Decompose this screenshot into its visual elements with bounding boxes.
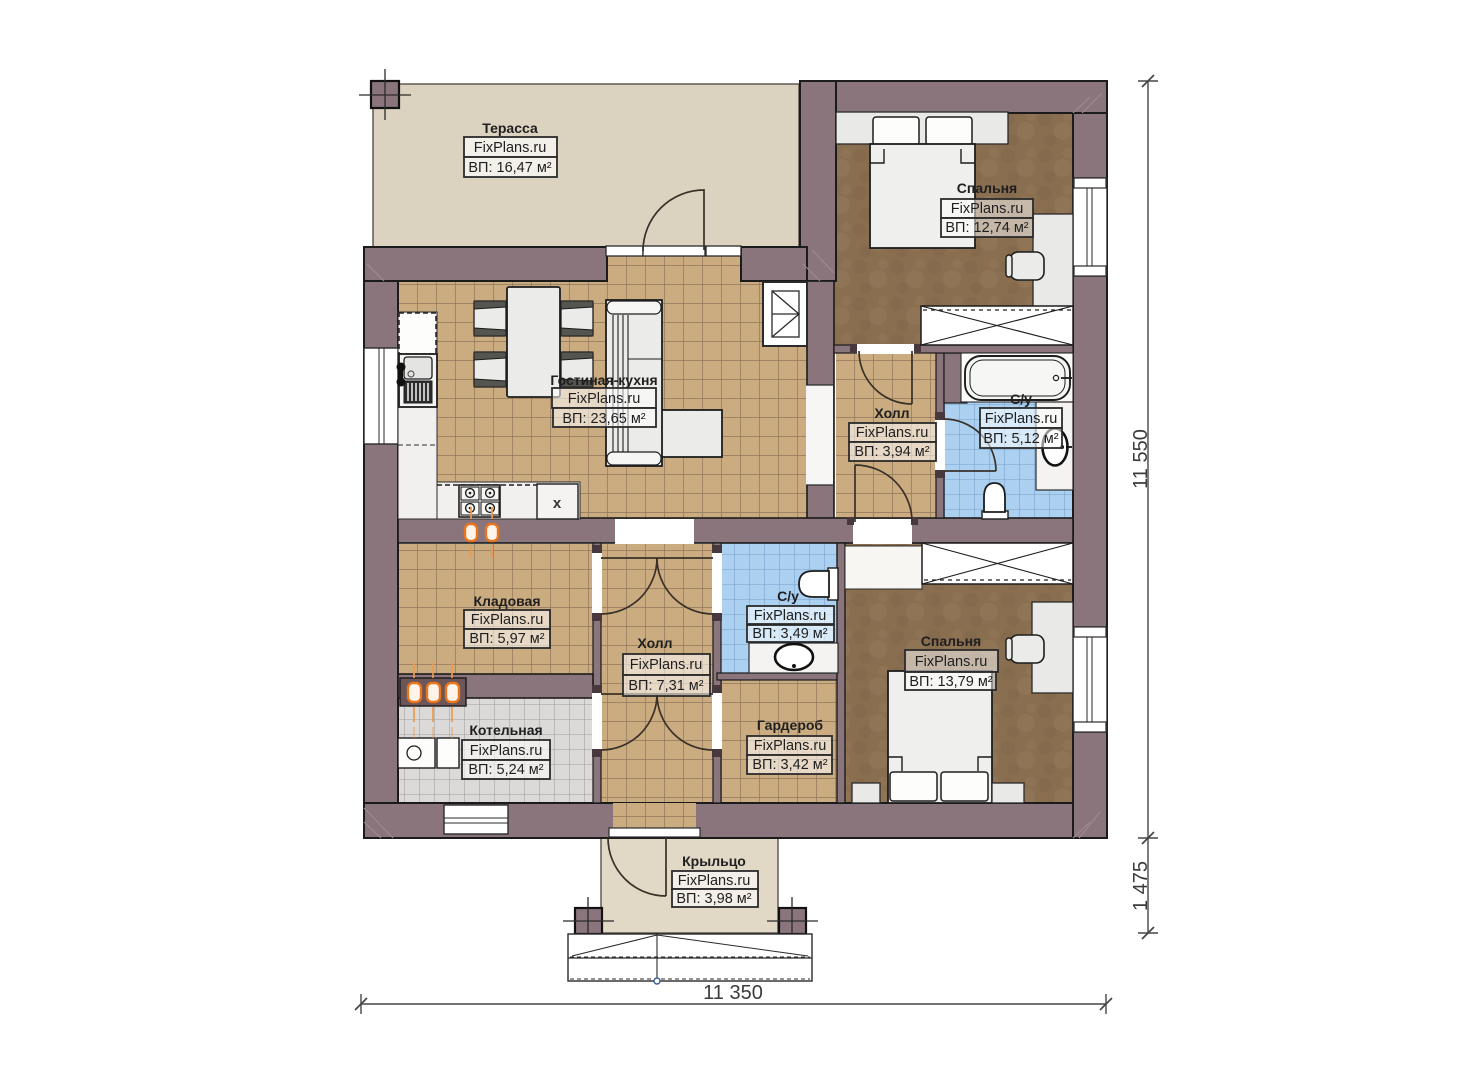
svg-text:FixPlans.ru: FixPlans.ru (985, 411, 1058, 427)
svg-text:FixPlans.ru: FixPlans.ru (630, 657, 703, 673)
svg-text:Крыльцо: Крыльцо (682, 853, 746, 869)
svg-text:ВП: 7,31 м²: ВП: 7,31 м² (628, 678, 703, 694)
svg-text:11 350: 11 350 (703, 982, 763, 1004)
svg-text:FixPlans.ru: FixPlans.ru (754, 738, 827, 754)
svg-text:ВП: 5,24 м²: ВП: 5,24 м² (468, 762, 543, 778)
svg-text:Спальня: Спальня (921, 633, 981, 649)
svg-text:ВП: 3,42 м²: ВП: 3,42 м² (752, 757, 827, 773)
svg-text:С/у: С/у (1010, 391, 1032, 407)
svg-text:x: x (553, 495, 562, 512)
svg-text:FixPlans.ru: FixPlans.ru (470, 743, 543, 759)
svg-text:FixPlans.ru: FixPlans.ru (474, 140, 547, 156)
svg-text:FixPlans.ru: FixPlans.ru (856, 425, 929, 441)
svg-text:11 550: 11 550 (1130, 429, 1152, 489)
svg-text:Холл: Холл (637, 635, 672, 651)
svg-text:FixPlans.ru: FixPlans.ru (915, 654, 988, 670)
svg-text:1 475: 1 475 (1130, 861, 1152, 911)
svg-text:ВП: 5,97 м²: ВП: 5,97 м² (469, 631, 544, 647)
svg-text:Спальня: Спальня (957, 180, 1017, 196)
svg-text:Терасса: Терасса (482, 120, 538, 136)
svg-text:ВП: 5,12 м²: ВП: 5,12 м² (983, 431, 1058, 447)
svg-text:FixPlans.ru: FixPlans.ru (754, 608, 827, 624)
svg-text:Кладовая: Кладовая (473, 593, 540, 609)
svg-text:С/у: С/у (777, 588, 799, 604)
svg-text:ВП: 12,74 м²: ВП: 12,74 м² (945, 220, 1028, 236)
svg-text:FixPlans.ru: FixPlans.ru (471, 612, 544, 628)
svg-text:Гостиная-кухня: Гостиная-кухня (550, 372, 657, 388)
svg-text:ВП: 13,79 м²: ВП: 13,79 м² (909, 674, 992, 690)
svg-text:ВП: 23,65 м²: ВП: 23,65 м² (562, 411, 645, 427)
svg-text:ВП: 3,49 м²: ВП: 3,49 м² (752, 626, 827, 642)
svg-text:Котельная: Котельная (469, 722, 542, 738)
svg-text:FixPlans.ru: FixPlans.ru (568, 391, 641, 407)
svg-text:Гардероб: Гардероб (757, 717, 824, 733)
svg-text:Холл: Холл (874, 405, 909, 421)
svg-text:FixPlans.ru: FixPlans.ru (951, 201, 1024, 217)
svg-text:ВП: 16,47 м²: ВП: 16,47 м² (468, 160, 551, 176)
svg-text:ВП: 3,94 м²: ВП: 3,94 м² (854, 444, 929, 460)
svg-text:ВП: 3,98 м²: ВП: 3,98 м² (676, 891, 751, 907)
svg-text:FixPlans.ru: FixPlans.ru (678, 873, 751, 889)
